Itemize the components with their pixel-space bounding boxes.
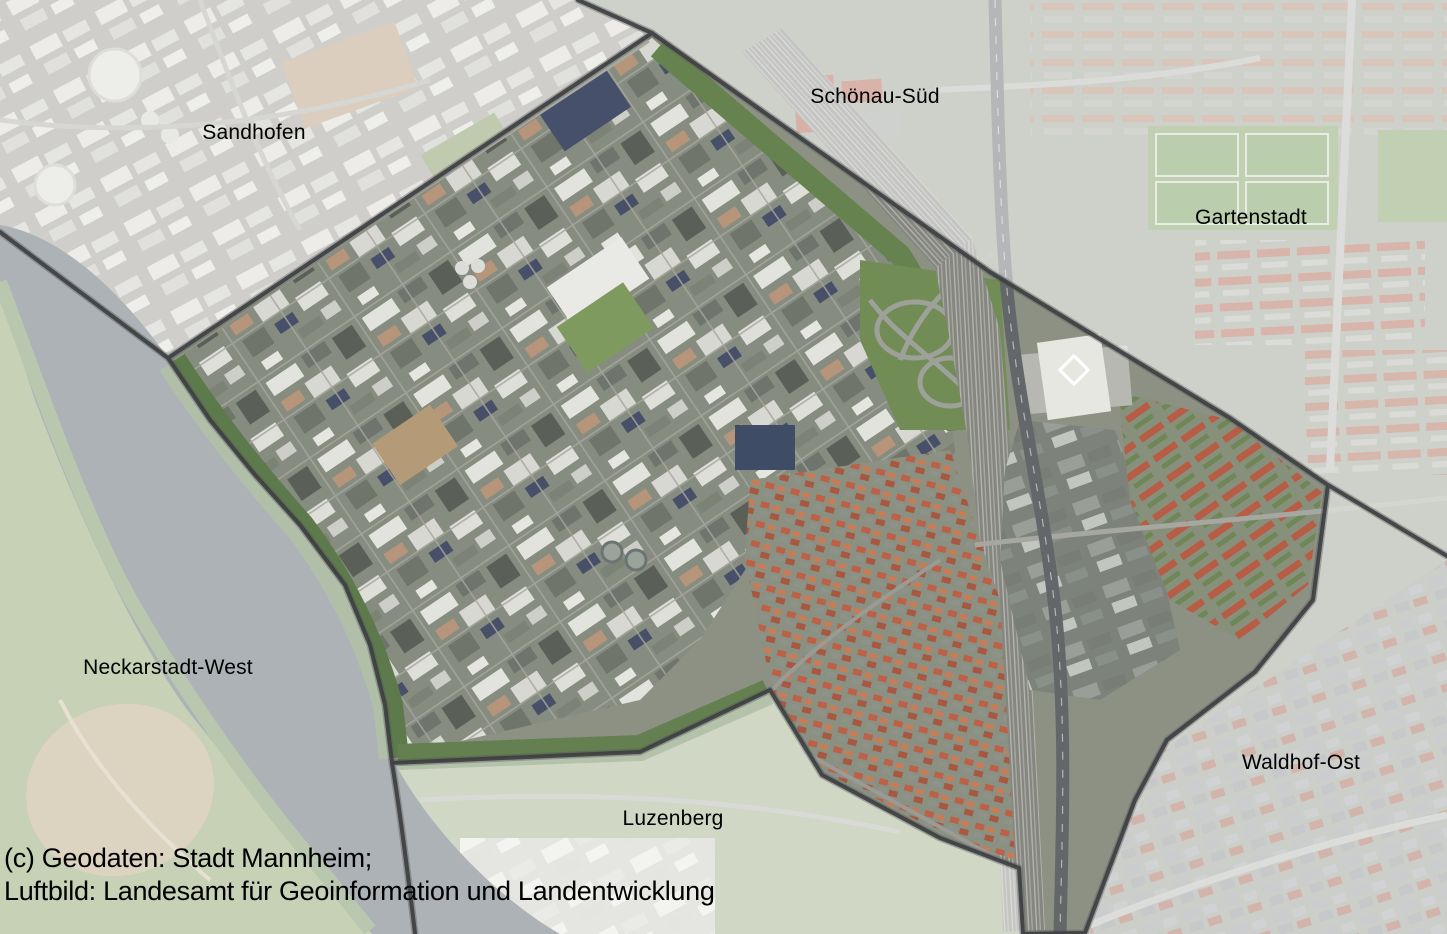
attribution-line-1: (c) Geodaten: Stadt Mannheim; bbox=[4, 843, 372, 873]
attribution-line-2: Luftbild: Landesamt für Geoinformation u… bbox=[4, 876, 715, 906]
district-label-neckarstadt-west: Neckarstadt-West bbox=[83, 656, 253, 680]
district-label-schoenau-sued: Schönau-Süd bbox=[810, 85, 939, 109]
district-label-waldhof-ost: Waldhof-Ost bbox=[1242, 751, 1360, 775]
district-label-sandhofen: Sandhofen bbox=[202, 121, 305, 145]
district-label-gartenstadt: Gartenstadt bbox=[1195, 206, 1307, 230]
district-label-luzenberg: Luzenberg bbox=[622, 807, 723, 831]
map-viewport: Sandhofen Schönau-Süd Gartenstadt Neckar… bbox=[0, 0, 1447, 934]
